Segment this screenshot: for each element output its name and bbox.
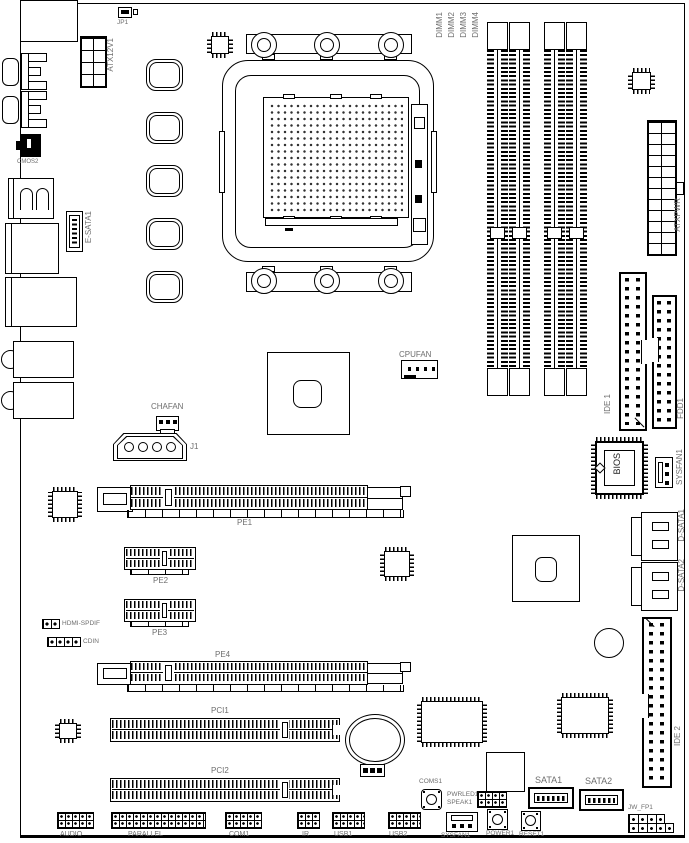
jw-fp1-header-row [628, 823, 674, 833]
pci1-key [282, 722, 288, 738]
pe3-key [162, 603, 167, 618]
usb-stack-edge [11, 278, 12, 326]
pe2-key [162, 551, 167, 566]
esata1-contacts [72, 219, 77, 244]
choke [146, 112, 183, 144]
sysfan1-bottom-label: SYSFAN1 [441, 833, 470, 840]
dimm2-slot [509, 50, 530, 368]
ps2-port-arm [28, 67, 41, 76]
esata1-label: E-SATA1 [85, 211, 93, 243]
mounting-hole [594, 628, 624, 658]
j1-pin [138, 442, 148, 452]
chafan-label: CHAFAN [151, 403, 183, 411]
jp1-label: JP1 [117, 20, 128, 27]
ps2-port-arm [28, 81, 47, 90]
ps2-port-arm [28, 91, 47, 100]
cmos2-label: CMOS2 [17, 159, 38, 165]
dsata1-slot [652, 540, 669, 549]
pci2-teeth [112, 780, 338, 788]
qfp-chip [628, 68, 655, 94]
fdd1-pins [657, 301, 661, 423]
socket-lever-pin [415, 160, 422, 168]
sysfan1-pin [468, 824, 472, 828]
pci2-teeth [112, 791, 338, 799]
usb2-header [388, 812, 421, 829]
bios-label: BIOS [613, 453, 622, 475]
pe2-pads [130, 569, 189, 575]
dimm1-key [490, 227, 505, 239]
socket-lever-clip [414, 117, 425, 129]
coms1-label: COMS1 [419, 779, 442, 786]
dimm3-key [547, 227, 562, 239]
pe1-right-clip [400, 486, 411, 497]
fdd1-label: FDD1 [677, 398, 685, 419]
pe1-key [165, 489, 172, 506]
cpu-mount-hole-inner [257, 274, 271, 288]
pci2-end-notch [332, 785, 341, 795]
fdd1-connector [652, 295, 677, 429]
dsata1-label: D-SATA1 [678, 509, 686, 542]
reset1-label: RESET1 [519, 832, 544, 839]
ide1-pins [636, 278, 640, 425]
pe4-end-tab-inner [103, 668, 127, 679]
dimm2-label: DIMM2 [448, 12, 456, 38]
dimm1-label: DIMM1 [436, 12, 444, 38]
southbridge-die [535, 557, 557, 582]
cdin-header [47, 637, 81, 647]
sata1-label: SATA1 [535, 776, 562, 785]
pe4-right-bracket-line [368, 673, 402, 674]
com1-header [225, 812, 262, 829]
pe3-label: PE3 [152, 629, 167, 637]
button-dot [536, 827, 538, 829]
lan-port-edge [13, 179, 14, 218]
button-dot [438, 791, 440, 793]
parallel-label: PARALLEL [128, 831, 163, 838]
j1-label: J1 [190, 443, 198, 451]
choke [146, 165, 183, 197]
chafan-pin [159, 420, 163, 424]
pci1-teeth [112, 731, 338, 739]
rear-io-block [20, 0, 78, 42]
pci1-label: PCI1 [211, 707, 229, 715]
usb2-label: USB2 [389, 831, 407, 838]
battery-clip-pin [370, 768, 375, 773]
pe4-right-clip [400, 662, 411, 672]
com1-label: COM1 [229, 831, 249, 838]
cpufan-pin [408, 367, 411, 371]
ir-label: IR [302, 831, 309, 838]
qfp-chip [380, 547, 414, 581]
dsata2-connector [641, 562, 678, 611]
cpu-frame-side-tab [431, 131, 437, 193]
cpu-mount-hole-inner [384, 274, 398, 288]
pe4-label: PE4 [215, 651, 230, 659]
fdd1-notch [650, 338, 659, 362]
ide1-pins [625, 278, 629, 425]
dsata2-slot [652, 590, 669, 599]
atxpwr-label: ATXPWR [674, 198, 682, 232]
qfp-chip [207, 32, 233, 58]
qfp-chip-large [417, 697, 487, 747]
button-dot [423, 791, 425, 793]
dimm2-slot-end [509, 368, 530, 396]
pci1-teeth [112, 720, 338, 728]
sata2-label: SATA2 [585, 777, 612, 786]
dimm4-slot-end [566, 22, 587, 50]
lan-port-contact [36, 188, 49, 210]
fdd1-pins [667, 301, 671, 423]
j1-pin [152, 442, 162, 452]
dimm3-slot [544, 50, 565, 368]
jp1-pin [133, 9, 138, 15]
cpu-mount-hole-inner [384, 38, 398, 52]
atxpwr-latch [676, 182, 684, 195]
sysfan1-pin [665, 463, 669, 467]
atx12v1-label: ATX12V1 [107, 38, 115, 72]
dimm1-slot-end [487, 368, 508, 396]
sysfan1-pin [460, 824, 464, 828]
power1-button-cap [492, 814, 503, 825]
pe4-pads [127, 685, 404, 692]
qfp-chip [48, 487, 82, 522]
pe1-label: PE1 [237, 519, 252, 527]
choke [146, 59, 183, 91]
button-dot [504, 811, 506, 813]
chafan-pin [173, 420, 177, 424]
socket-edge-tab [330, 94, 342, 99]
button-dot [489, 811, 491, 813]
dimm4-key [569, 227, 584, 239]
ir-header [297, 812, 320, 829]
dimm4-label: DIMM4 [472, 12, 480, 38]
socket-edge-tab [370, 94, 382, 99]
cdin-label: CDIN [83, 639, 99, 646]
dsata1-connector [641, 512, 678, 561]
usb-stack-edge [11, 224, 12, 273]
ps2-port-arm [28, 53, 47, 62]
audio-jack-body [13, 382, 74, 419]
qfp-chip [55, 719, 81, 743]
ide2-label: IDE 2 [674, 726, 682, 746]
dimm3-slot-end [544, 368, 565, 396]
cpufan-key [404, 375, 416, 379]
cpufan-pin [416, 367, 419, 371]
ps2-port-barrel [2, 96, 19, 124]
northbridge-die [293, 380, 322, 408]
pci2-key [282, 782, 288, 798]
lan-port-contact [20, 188, 33, 210]
dimm3-slot-end [544, 22, 565, 50]
button-dot [504, 826, 506, 828]
choke [146, 218, 183, 250]
pe1-right-bracket-line [368, 498, 402, 499]
pwrled1-label: PWRLED1 [447, 792, 478, 799]
pci2-label: PCI2 [211, 767, 229, 775]
pe4-key [165, 665, 172, 681]
sysfan1-right-key [658, 462, 663, 483]
pci2-midline [112, 789, 338, 790]
pwrled-speak-header [477, 791, 507, 808]
motherboard-layout-diagram: JP1 ATX12V1 CMOS2 E-SATA1 [0, 0, 689, 843]
j1-pin [166, 442, 176, 452]
jw-fp1-label: JW_FP1 [628, 805, 653, 812]
ide1-notch [641, 340, 650, 364]
cpu-mount-hole-inner [320, 38, 334, 52]
power1-label: POWER1 [486, 831, 514, 838]
battery-clip-pin [377, 768, 382, 773]
cpu-mount-hole-inner [320, 274, 334, 288]
pe2-label: PE2 [153, 577, 168, 585]
sata2-contacts [588, 798, 615, 803]
dimm2-slot-end [509, 22, 530, 50]
choke [146, 271, 183, 303]
pe1-end-tab-inner [103, 493, 127, 505]
button-dot [423, 806, 425, 808]
socket-edge-tab [283, 94, 295, 99]
sysfan1-pin [665, 481, 669, 485]
dimm3-label: DIMM3 [460, 12, 468, 38]
ide2-pins [660, 623, 664, 782]
chafan-pin [166, 420, 170, 424]
j1-pin [124, 442, 134, 452]
sysfan1-bottom-key [451, 815, 473, 821]
component-block [486, 752, 525, 792]
dimm1-slot [487, 50, 508, 368]
socket-lever-base [265, 218, 398, 226]
audio-header [57, 812, 94, 829]
hdmi-spdif-label: HDMI-SPDIF [62, 621, 100, 628]
usb-stack [5, 277, 77, 327]
hdmi-spdif-header [42, 619, 60, 629]
ide2-pins [649, 623, 653, 782]
reset1-button-cap [525, 815, 536, 826]
ps2-port-barrel [2, 58, 19, 86]
sata1-contacts [537, 796, 565, 801]
dsata1-slot [652, 522, 669, 531]
atxpwr-connector [647, 120, 677, 256]
cpufan-label: CPUFAN [399, 351, 431, 359]
cpu-frame-side-tab [219, 131, 225, 193]
dsata2-slot [652, 572, 669, 581]
speak1-label: SPEAK1 [447, 800, 472, 807]
ide1-label: IDE 1 [604, 394, 612, 414]
usb-stack [5, 223, 59, 274]
button-dot [523, 827, 525, 829]
pci1-end-notch [332, 725, 341, 735]
pe1-pads [127, 510, 404, 518]
dsata2-label: D-SATA2 [678, 559, 686, 592]
usb1-label: USB1 [334, 831, 352, 838]
pci1-midline [112, 729, 338, 730]
sysfan1-pin [452, 824, 456, 828]
cmos2-slit [27, 139, 31, 148]
dimm4-slot [566, 50, 587, 368]
dimm2-key [512, 227, 527, 239]
audio-label: AUDIO [60, 831, 82, 838]
dimm1-slot-end [487, 22, 508, 50]
pe3-pads [130, 621, 189, 627]
coms1-button-cap [426, 794, 437, 805]
usb1-header [332, 812, 365, 829]
cmos2-nub [16, 141, 20, 150]
jp1-jumper-cap [121, 10, 129, 14]
cpufan-pin [424, 367, 427, 371]
battery-inner [349, 718, 401, 762]
cpu-mount-hole-inner [257, 38, 271, 52]
ide2-notch [640, 694, 649, 718]
ps2-port-arm [28, 105, 41, 114]
dimm4-slot-end [566, 368, 587, 396]
cpu-pin-grid [269, 103, 403, 212]
sysfan1-right-label: SYSFAN1 [676, 449, 684, 485]
cpufan-pin [432, 367, 435, 371]
sysfan1-pin [665, 472, 669, 476]
socket-mark [285, 228, 293, 231]
socket-lever-pin [415, 195, 422, 203]
atx12v1-connector [80, 36, 107, 88]
parallel-header [111, 812, 206, 829]
battery-clip-pin [363, 768, 368, 773]
ps2-port-arm [28, 119, 47, 128]
button-dot [489, 826, 491, 828]
button-dot [536, 813, 538, 815]
socket-lever-clip [413, 218, 426, 232]
audio-jack-body [13, 341, 74, 378]
button-dot [523, 813, 525, 815]
qfp-chip-large [557, 693, 613, 738]
button-dot [438, 806, 440, 808]
